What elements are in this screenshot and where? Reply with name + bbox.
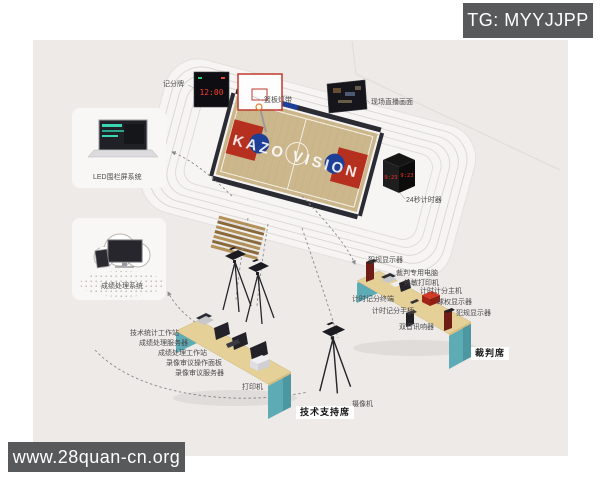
referee-station-label: 裁判席 bbox=[471, 347, 509, 360]
scoreboard-label: 记分牌 bbox=[163, 81, 184, 88]
scoreboard: 12:00 bbox=[194, 72, 229, 107]
printer-label: 打印机 bbox=[242, 384, 263, 391]
website-watermark: www.28quan-cn.org bbox=[8, 442, 185, 472]
led-fence-card-label: LED围栏屏系统 bbox=[93, 174, 142, 181]
scoreboard-display: 12:00 bbox=[199, 88, 223, 97]
shot-clock-display-left: 9:23 bbox=[384, 175, 397, 181]
camera-label: 摄像机 bbox=[352, 401, 373, 408]
video-review-panel-label: 录像审议操作面板 bbox=[166, 360, 222, 367]
dual-sounder-label: 双音讯响器 bbox=[399, 324, 434, 331]
live-screen-label: 现场直播画面 bbox=[371, 99, 413, 106]
tech-stats-workstation-label: 技术统计工作站 bbox=[130, 330, 179, 337]
results-workstation-label: 成绩处理工作站 bbox=[158, 350, 207, 357]
possession-display-label: 球权显示器 bbox=[437, 299, 472, 306]
camera-icon bbox=[320, 322, 351, 394]
shot-clock-display-right: 9:23 bbox=[400, 173, 413, 179]
shot-clock-cube: 9:23 9:23 bbox=[383, 153, 415, 193]
foul-display-left-label: 犯规显示器 bbox=[368, 257, 403, 264]
timing-handle-label: 计时记分手柄 bbox=[372, 308, 414, 315]
backboard-strip-label: 篮板灯带 bbox=[264, 97, 292, 104]
tech-support-station-label: 技术支持席 bbox=[296, 406, 354, 419]
foul-display-right-label: 犯规显示器 bbox=[456, 310, 491, 317]
timing-scoring-host-label: 计时计分主机 bbox=[420, 288, 462, 295]
shot-clock-label: 24秒计时器 bbox=[406, 197, 442, 204]
camera-icon bbox=[246, 259, 274, 324]
results-cloud-card-label: 成绩处理系统 bbox=[101, 283, 143, 290]
timing-terminal-label: 计时记分终端 bbox=[352, 296, 394, 303]
telegram-watermark: TG: MYYJJPP bbox=[463, 3, 593, 38]
live-broadcast-screen bbox=[327, 80, 367, 113]
diagram-page: KAZO VISION 12:00 bbox=[0, 0, 600, 480]
video-review-server-label: 录像审议服务器 bbox=[175, 370, 224, 377]
referee-computer-label: 裁判专用电脑 bbox=[396, 270, 438, 277]
thermal-printer-label: 热敏打印机 bbox=[404, 280, 439, 287]
results-server-label: 成绩处理服务器 bbox=[139, 340, 188, 347]
